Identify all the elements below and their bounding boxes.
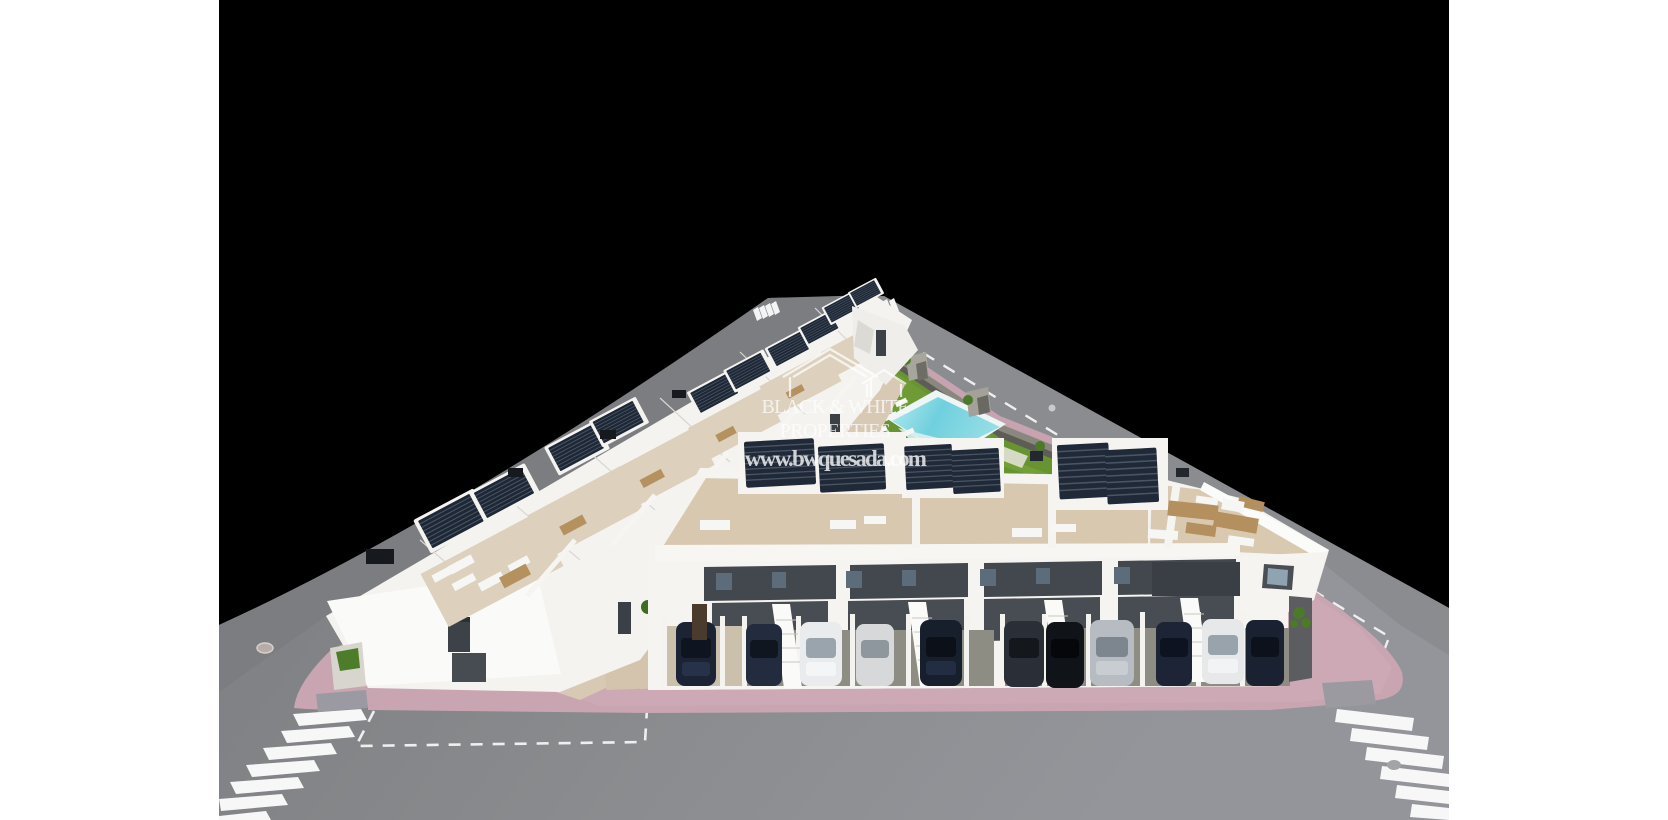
- svg-text:www.bwquesada.com: www.bwquesada.com: [745, 446, 927, 471]
- svg-text:BLACK & WHITE: BLACK & WHITE: [762, 396, 910, 418]
- svg-text:PROPERTIES: PROPERTIES: [780, 420, 891, 442]
